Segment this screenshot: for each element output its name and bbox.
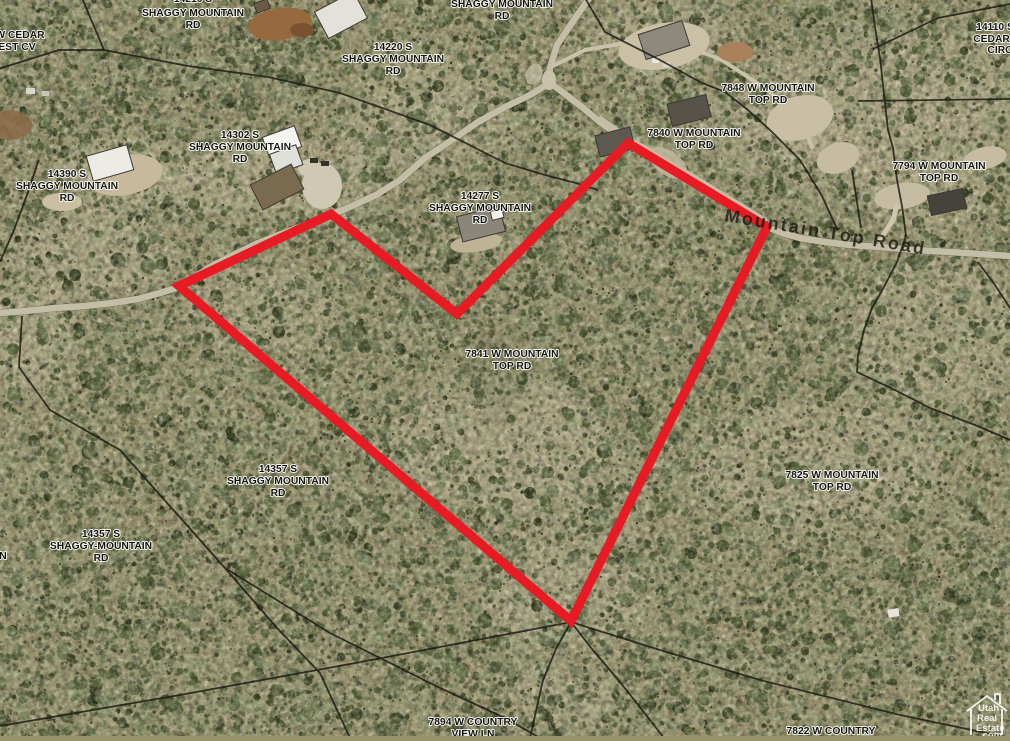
svg-text:14357 S: 14357 S bbox=[82, 529, 120, 540]
svg-text:RD: RD bbox=[495, 11, 510, 22]
svg-text:7825 W MOUNTAIN: 7825 W MOUNTAIN bbox=[785, 470, 878, 481]
svg-text:SHAGGY MOUNTAIN: SHAGGY MOUNTAIN bbox=[189, 142, 291, 153]
svg-text:7840 W MOUNTAIN: 7840 W MOUNTAIN bbox=[647, 128, 740, 139]
svg-text:14302 S: 14302 S bbox=[221, 130, 259, 141]
svg-text:TOP RD: TOP RD bbox=[749, 95, 788, 106]
svg-text:SHAGGY MOUNTAIN: SHAGGY MOUNTAIN bbox=[16, 181, 118, 192]
svg-text:RD: RD bbox=[473, 215, 488, 226]
svg-text:TOP RD: TOP RD bbox=[813, 482, 852, 493]
svg-text:W CEDAR: W CEDAR bbox=[0, 30, 45, 41]
svg-text:14390 S: 14390 S bbox=[48, 169, 86, 180]
svg-text:RD: RD bbox=[186, 20, 201, 31]
svg-text:VIEW LN: VIEW LN bbox=[452, 729, 495, 736]
svg-text:14110 S: 14110 S bbox=[976, 22, 1010, 33]
svg-text:7794 W MOUNTAIN: 7794 W MOUNTAIN bbox=[892, 161, 985, 172]
svg-text:RD: RD bbox=[386, 66, 401, 77]
svg-text:7848 W MOUNTAIN: 7848 W MOUNTAIN bbox=[721, 83, 814, 94]
svg-text:RD: RD bbox=[94, 553, 109, 564]
svg-text:TOP RD: TOP RD bbox=[493, 361, 532, 372]
svg-text:SHAGGY MOUNTAIN: SHAGGY MOUNTAIN bbox=[227, 476, 329, 487]
svg-text:14210 S: 14210 S bbox=[174, 0, 212, 5]
svg-text:14277 S: 14277 S bbox=[461, 191, 499, 202]
svg-text:14357 S: 14357 S bbox=[259, 464, 297, 475]
svg-text:SHAGGY MOUNTAIN: SHAGGY MOUNTAIN bbox=[142, 8, 244, 19]
svg-text:7841 W MOUNTAIN: 7841 W MOUNTAIN bbox=[465, 349, 558, 360]
svg-text:SHAGGY-MOUNTAIN: SHAGGY-MOUNTAIN bbox=[50, 541, 152, 552]
svg-text:EST CV: EST CV bbox=[0, 42, 36, 53]
svg-text:N: N bbox=[0, 551, 7, 562]
svg-text:14220 S: 14220 S bbox=[374, 42, 412, 53]
svg-text:RD: RD bbox=[233, 154, 248, 165]
svg-text:.com: .com bbox=[980, 730, 1002, 736]
svg-text:CEDAR G: CEDAR G bbox=[973, 34, 1010, 45]
svg-text:SHAGGY MOUNTAIN: SHAGGY MOUNTAIN bbox=[429, 203, 531, 214]
svg-text:7822 W COUNTRY: 7822 W COUNTRY bbox=[787, 726, 876, 736]
svg-text:SHAGGY MOUNTAIN: SHAGGY MOUNTAIN bbox=[451, 0, 553, 10]
svg-text:TOP RD: TOP RD bbox=[920, 173, 959, 184]
svg-text:SHAGGY MOUNTAIN: SHAGGY MOUNTAIN bbox=[342, 54, 444, 65]
svg-text:RD: RD bbox=[271, 488, 286, 499]
svg-text:TOP RD: TOP RD bbox=[675, 140, 714, 151]
svg-text:7894 W COUNTRY: 7894 W COUNTRY bbox=[429, 717, 518, 728]
svg-text:CIRC: CIRC bbox=[987, 45, 1010, 56]
svg-text:RD: RD bbox=[60, 193, 75, 204]
